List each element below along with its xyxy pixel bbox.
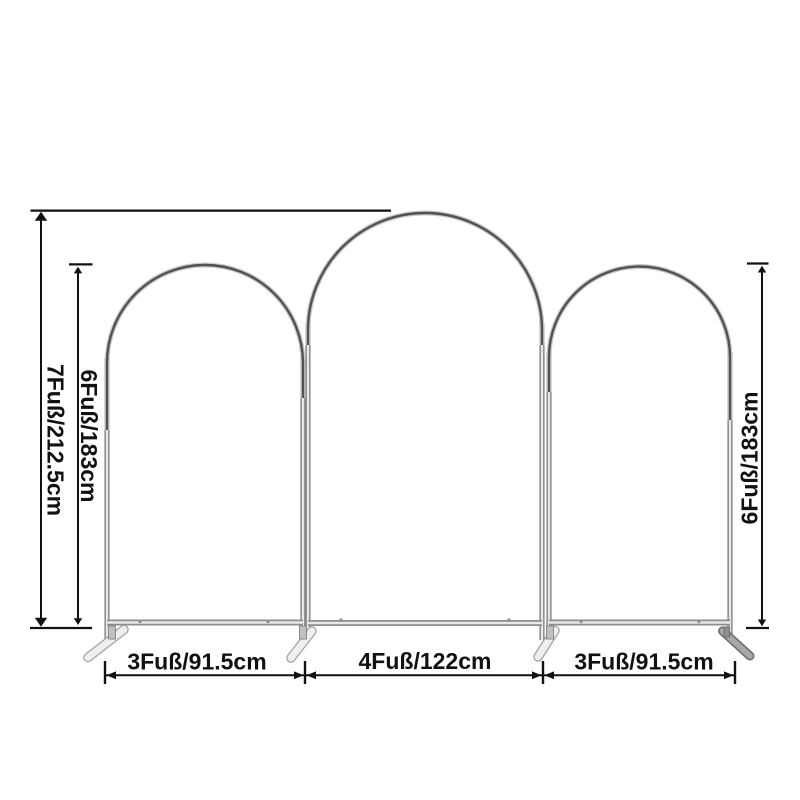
svg-text:3Fuß/91.5cm: 3Fuß/91.5cm bbox=[574, 649, 713, 675]
svg-text:6Fuß/183cm: 6Fuß/183cm bbox=[76, 370, 102, 503]
svg-text:6Fuß/183cm: 6Fuß/183cm bbox=[737, 392, 763, 525]
svg-text:3Fuß/91.5cm: 3Fuß/91.5cm bbox=[127, 649, 266, 675]
svg-text:4Fuß/122cm: 4Fuß/122cm bbox=[359, 648, 492, 674]
svg-text:7Fuß/212.5cm: 7Fuß/212.5cm bbox=[43, 364, 69, 516]
